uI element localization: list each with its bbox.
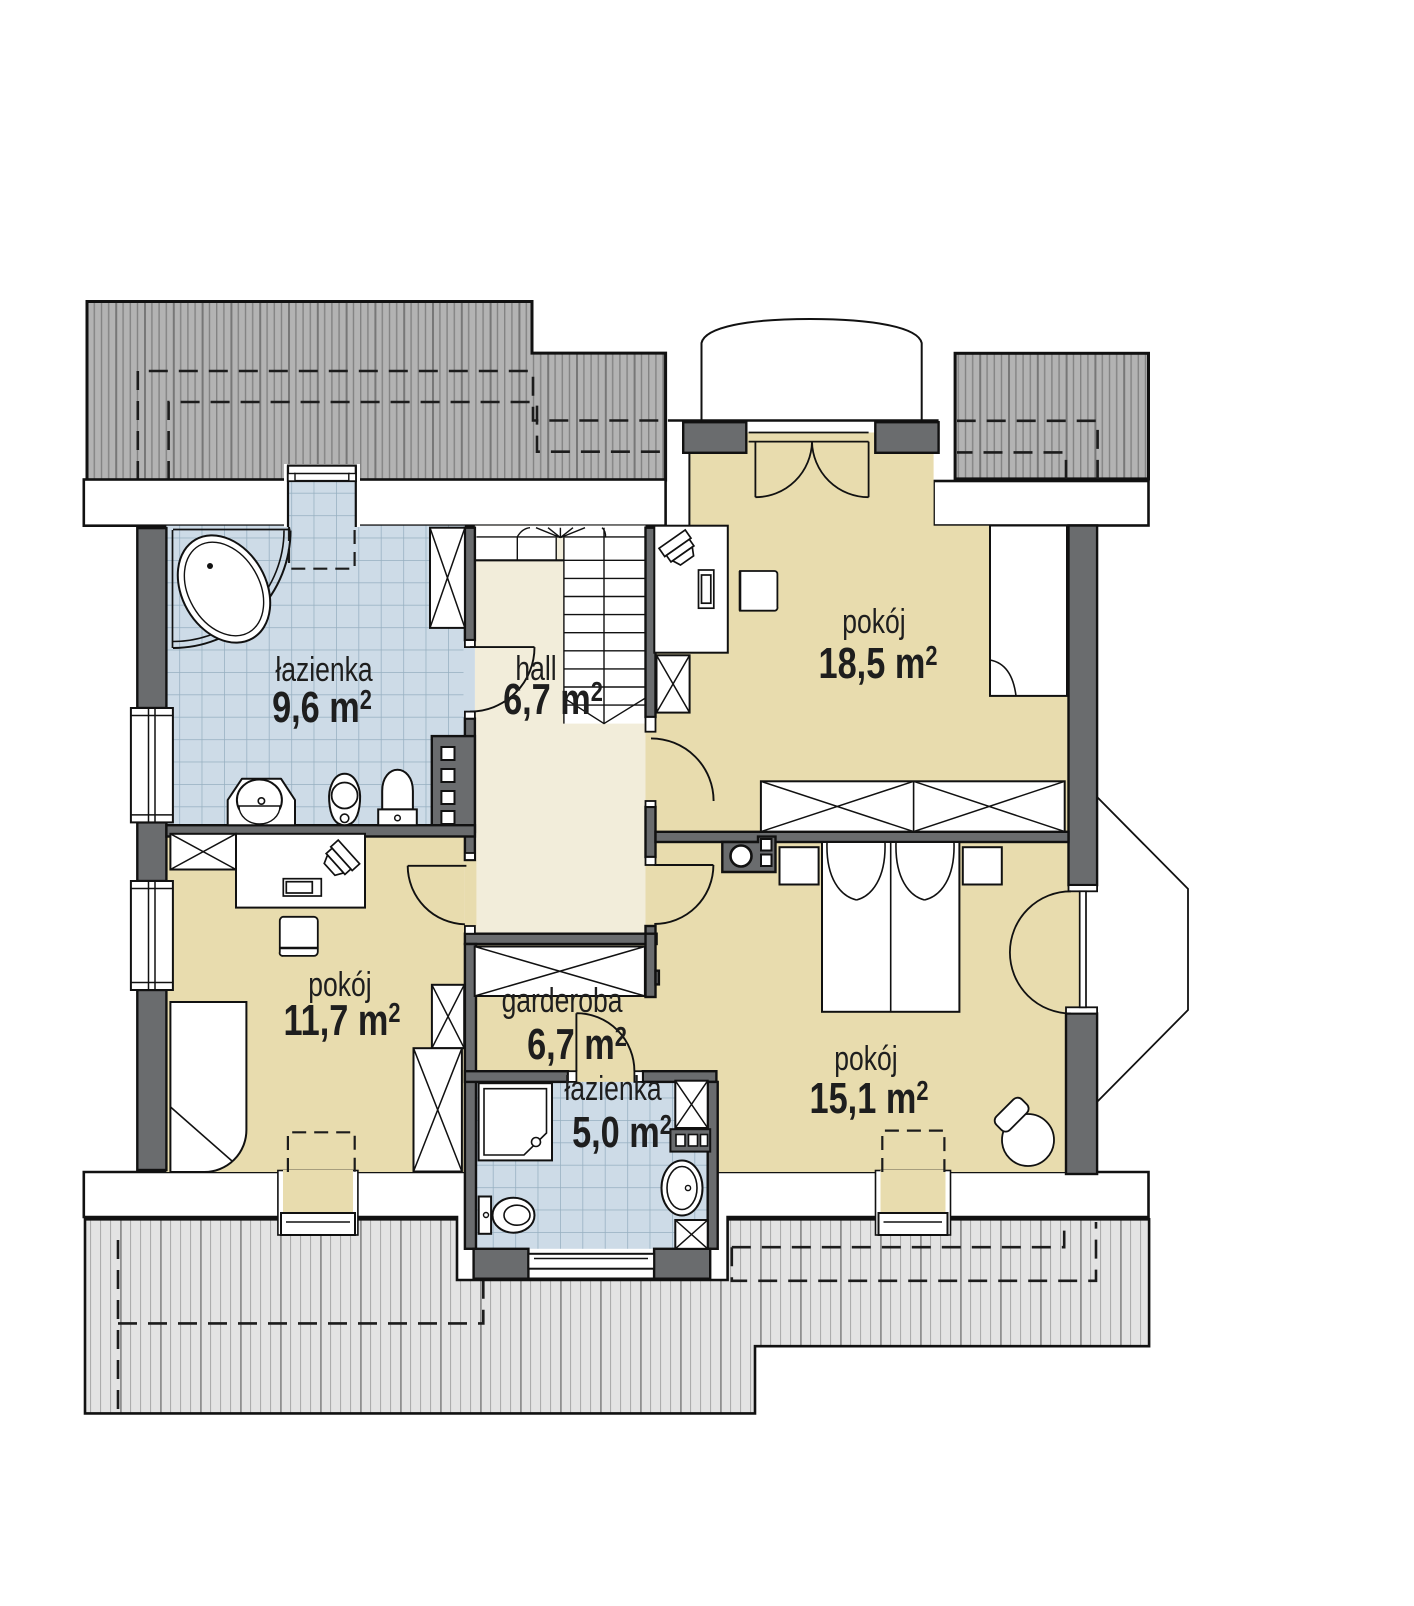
svg-text:18,5 m2: 18,5 m2	[819, 639, 938, 688]
svg-text:6,7 m2: 6,7 m2	[527, 1020, 627, 1069]
svg-text:łazienka: łazienka	[564, 1070, 661, 1108]
svg-text:5,0 m2: 5,0 m2	[572, 1108, 672, 1157]
svg-text:11,7 m2: 11,7 m2	[283, 996, 400, 1045]
svg-text:pokój: pokój	[842, 603, 905, 641]
svg-text:9,6 m2: 9,6 m2	[272, 683, 372, 732]
svg-text:6,7 m2: 6,7 m2	[503, 675, 603, 724]
svg-text:pokój: pokój	[834, 1040, 897, 1078]
svg-text:15,1 m2: 15,1 m2	[810, 1074, 929, 1123]
svg-text:garderoba: garderoba	[502, 982, 623, 1020]
